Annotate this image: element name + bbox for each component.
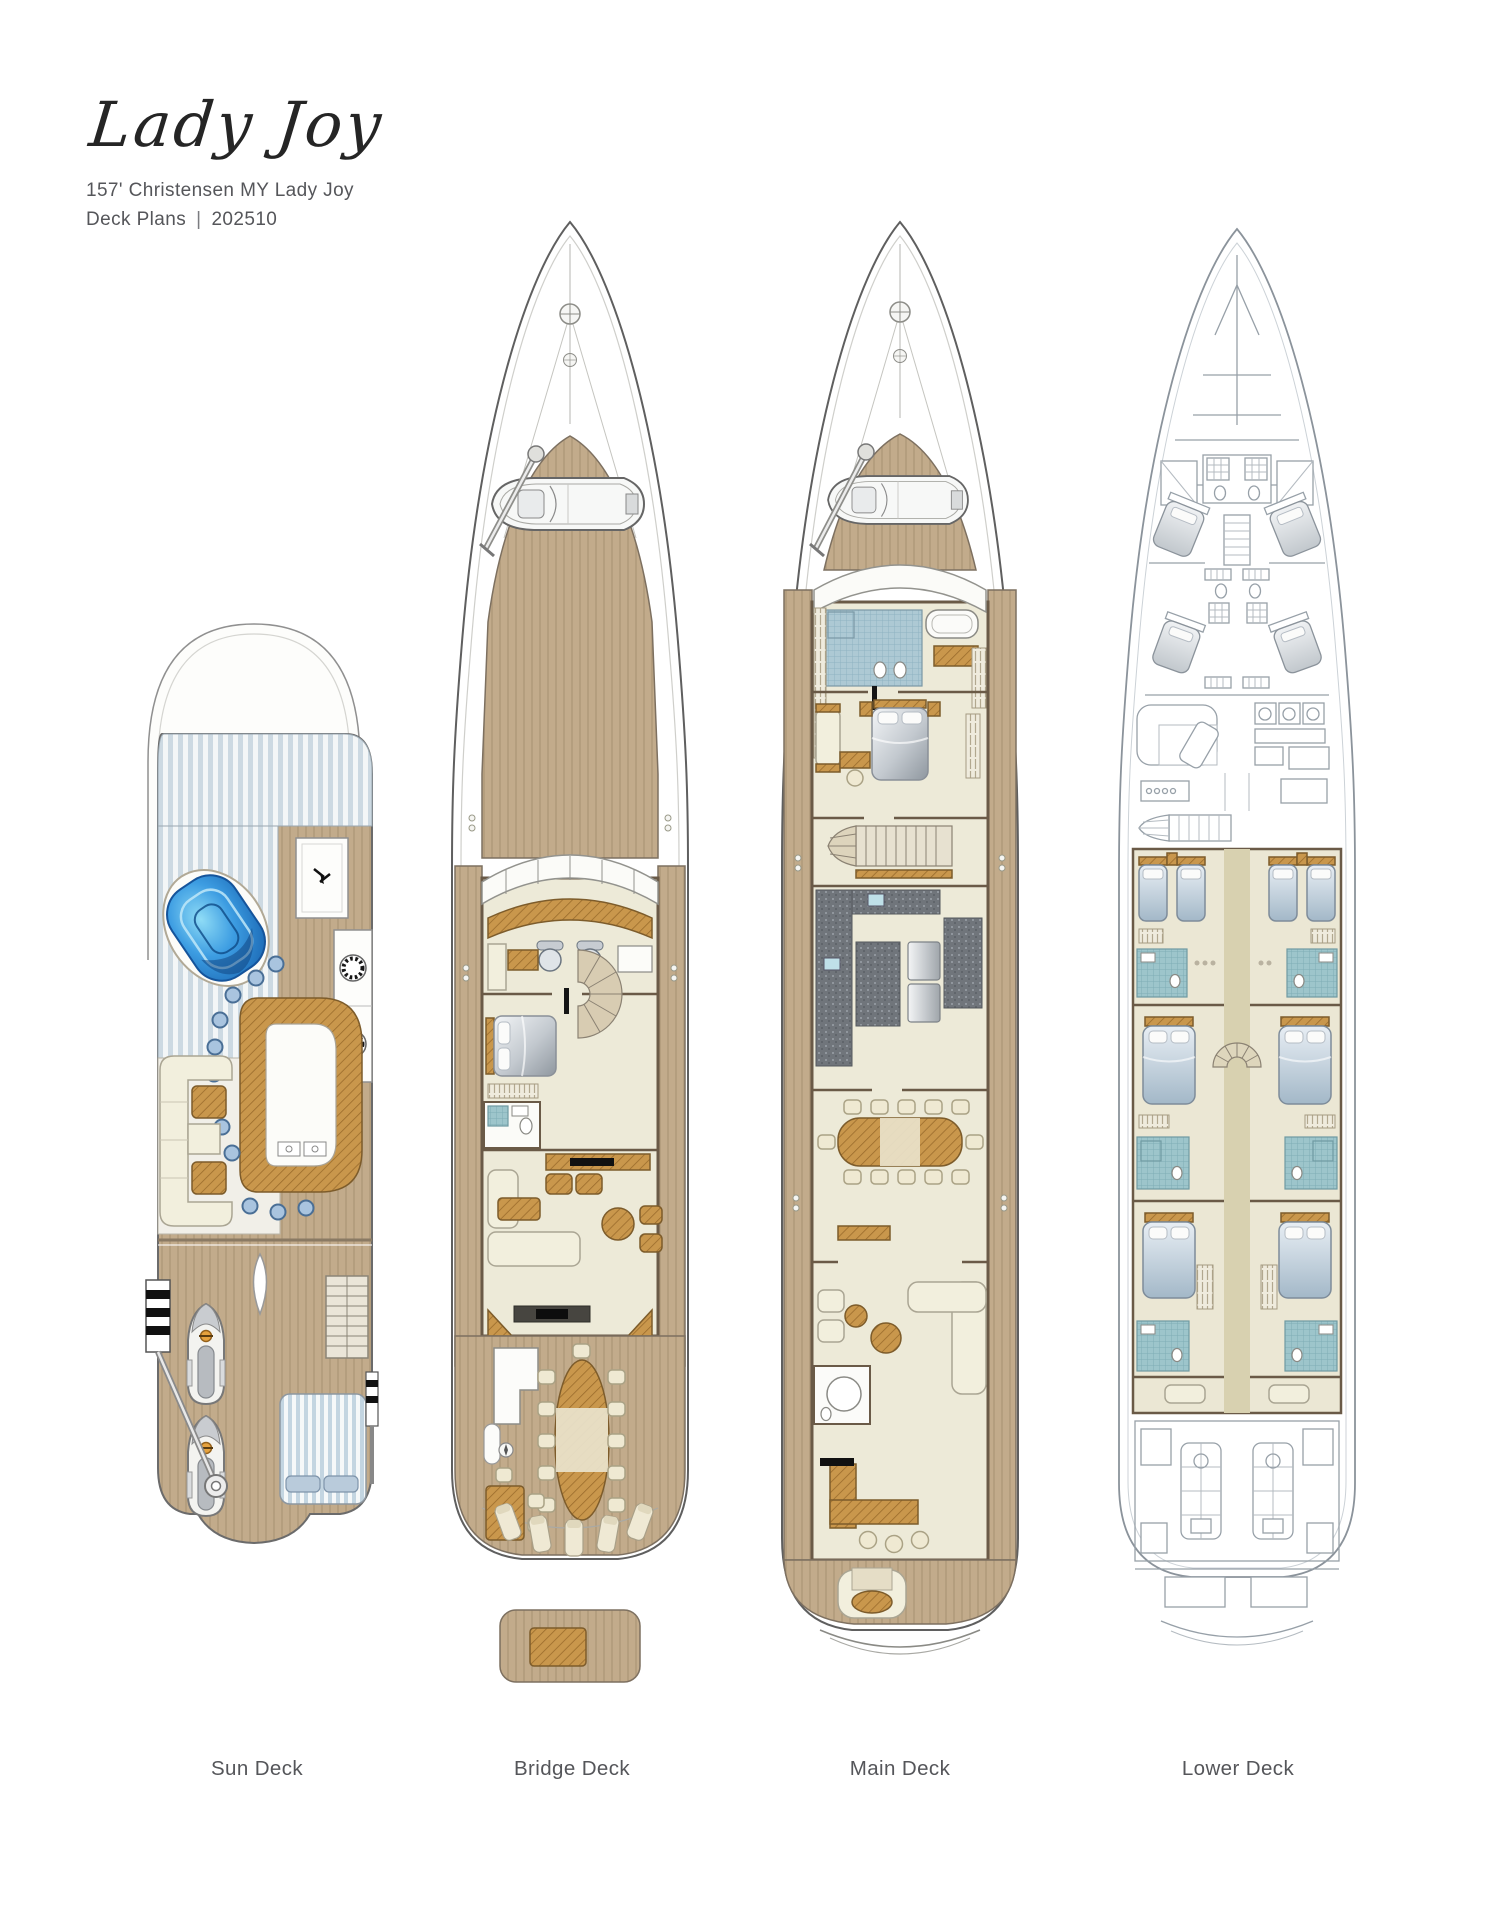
chair-icon — [640, 1234, 662, 1252]
dining-table-icon — [838, 1118, 962, 1166]
chair-icon — [640, 1206, 662, 1224]
day-head — [814, 1366, 870, 1424]
deck-plan-page: Lady Joy 157' Christensen MY Lady Joy De… — [0, 0, 1485, 1920]
cocktail-table-icon — [192, 1086, 226, 1118]
fridge-icon — [908, 984, 940, 1022]
side-table-icon — [845, 1305, 867, 1327]
main-deck-plan — [768, 218, 1032, 1693]
yacht-subtitle: 157' Christensen MY Lady Joy Deck Plans|… — [86, 177, 380, 234]
lower-deck-plan — [1105, 225, 1369, 1665]
jetski-icon — [187, 1304, 225, 1404]
main-deck-figure — [768, 218, 1032, 1693]
deck-label-main-deck: Main Deck — [790, 1757, 1010, 1781]
settee-table — [508, 950, 538, 970]
windlass-icon — [890, 302, 910, 322]
sink-icon — [824, 958, 840, 970]
bathtub-icon — [926, 610, 978, 638]
armchair-icon — [546, 1174, 572, 1194]
toilet-icon — [821, 1408, 831, 1421]
toilet-icon — [520, 1118, 532, 1134]
sofa-icon — [488, 1232, 580, 1266]
subtitle-deck-plans: Deck Plans — [86, 209, 186, 230]
aft-table-icon — [852, 1591, 892, 1613]
title-block: Lady Joy 157' Christensen MY Lady Joy De… — [86, 88, 380, 234]
chart-table — [618, 946, 652, 972]
dining-table-icon — [555, 1360, 609, 1520]
fridge-icon — [908, 942, 940, 980]
engine-icon — [1253, 1443, 1293, 1539]
deck-label-bridge-deck: Bridge Deck — [462, 1757, 682, 1781]
subtitle-line-1: 157' Christensen MY Lady Joy — [86, 177, 380, 206]
lower-deck-figure — [1105, 225, 1369, 1665]
shower-icon — [488, 1106, 508, 1126]
sink-icon — [512, 1106, 528, 1116]
subtitle-separator: | — [196, 209, 201, 230]
windlass-icon — [894, 350, 907, 363]
cabinet-icon — [966, 714, 980, 778]
subtitle-number: 202510 — [211, 209, 277, 230]
pilothouse-settee — [488, 944, 506, 990]
deck-hatch — [296, 838, 348, 918]
corridor — [1224, 849, 1250, 1413]
toilet-icon — [1249, 486, 1260, 500]
armchair-icon — [576, 1174, 602, 1194]
bidet-icon — [894, 662, 906, 678]
sun-deck-figure — [128, 612, 380, 1552]
settee-icon — [816, 704, 840, 772]
toilet-icon — [1215, 486, 1226, 500]
shower-icon — [827, 1377, 861, 1411]
sideboard-icon — [838, 1226, 890, 1240]
aft-settee — [838, 1568, 906, 1618]
dresser-icon — [488, 1084, 538, 1098]
bridge-deck-figure — [442, 218, 698, 1693]
lazarette — [1161, 1577, 1313, 1645]
games-table-icon — [602, 1208, 634, 1240]
armchair-icon — [818, 1290, 844, 1312]
captain-bath — [484, 1102, 540, 1148]
bar-icon — [240, 998, 362, 1192]
helm-seat-icon — [537, 941, 563, 971]
wardrobe-icon — [972, 648, 986, 708]
coffee-table-icon — [498, 1198, 540, 1220]
sunpad-icon — [280, 1394, 366, 1504]
master-bed-icon — [872, 700, 928, 780]
subtitle-line-2: Deck Plans|202510 — [86, 206, 380, 235]
stairs-icon — [326, 1276, 368, 1358]
sofa-icon — [908, 1282, 986, 1312]
laundry-icon — [1255, 703, 1329, 769]
cocktail-table-icon — [192, 1162, 226, 1194]
stairs-icon — [1224, 515, 1250, 565]
deck-label-sun-deck: Sun Deck — [147, 1757, 367, 1781]
stool-icon — [847, 770, 863, 786]
windlass-icon — [560, 304, 580, 324]
tender-icon — [492, 478, 644, 530]
armchair-icon — [818, 1320, 844, 1342]
captain-bed-icon — [486, 1016, 556, 1076]
vanity-icon — [934, 646, 978, 666]
mast-platform — [500, 1610, 640, 1682]
staircase-icon — [1139, 815, 1231, 841]
sun-deck-plan — [128, 612, 380, 1552]
windlass-icon — [564, 354, 577, 367]
bridge-deck-plan — [442, 218, 698, 1693]
compass-icon — [499, 1443, 513, 1457]
crew-mess — [1137, 705, 1220, 770]
deck-label-lower-deck: Lower Deck — [1128, 1757, 1348, 1781]
toilet-icon — [874, 662, 886, 678]
engine-icon — [1181, 1443, 1221, 1539]
coffee-table-icon — [871, 1323, 901, 1353]
yacht-name-title: Lady Joy — [86, 88, 387, 161]
sink-icon — [868, 894, 884, 906]
desk-icon — [840, 752, 870, 768]
